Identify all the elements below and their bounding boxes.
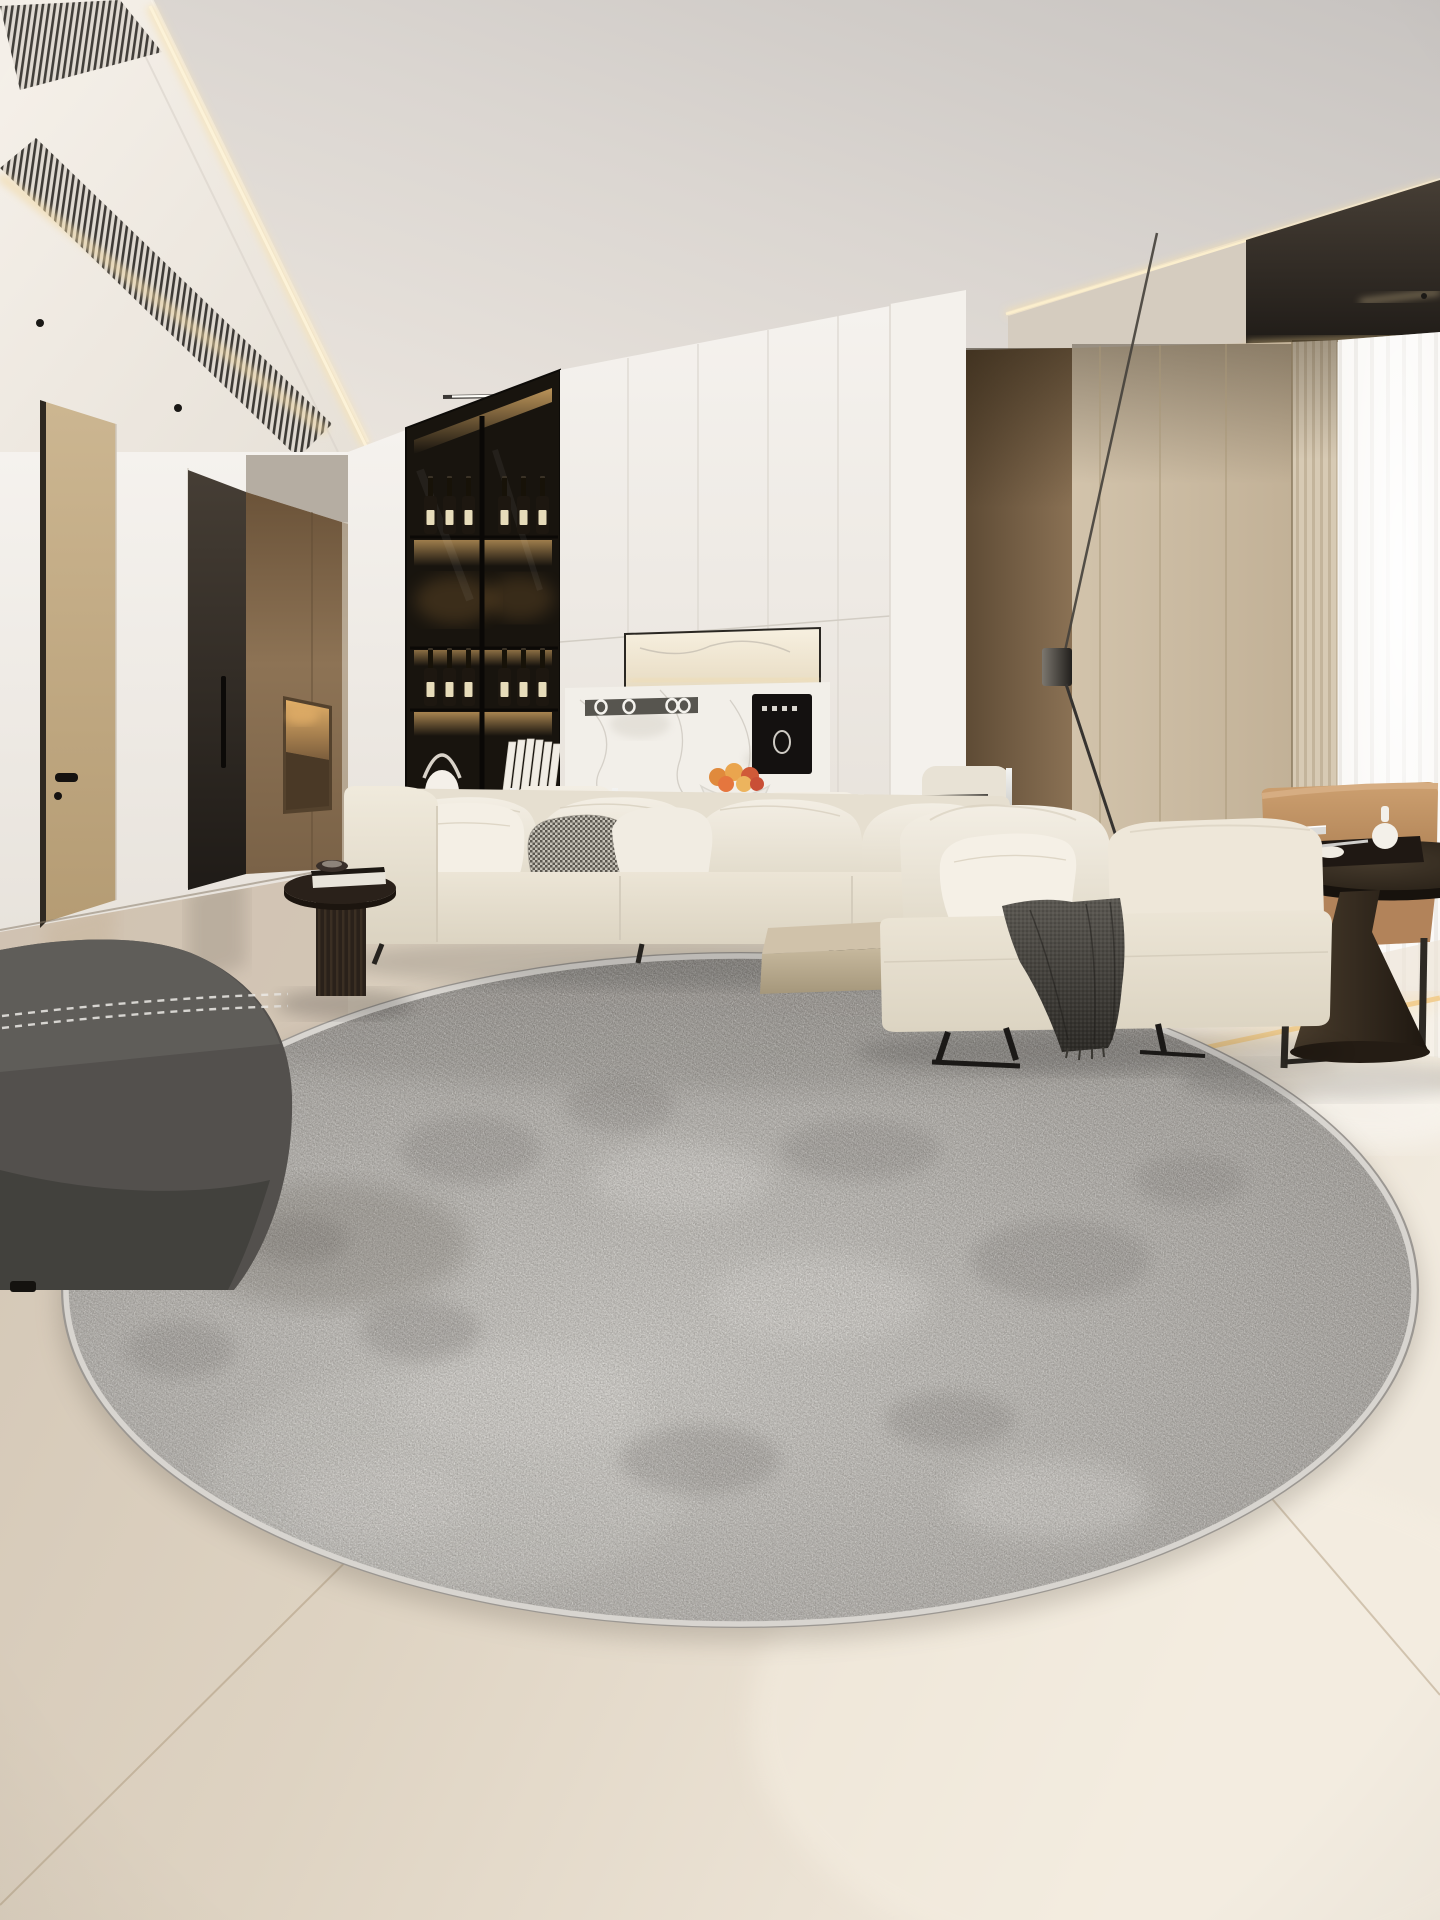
wall-left bbox=[0, 400, 348, 932]
marble-niche bbox=[625, 628, 820, 690]
utensil-rail bbox=[585, 697, 698, 716]
fruit bbox=[718, 776, 734, 792]
bowl-highlight bbox=[322, 861, 342, 868]
fruit bbox=[736, 776, 752, 792]
glow-arc bbox=[486, 576, 554, 620]
water-dispenser bbox=[752, 694, 812, 774]
niche-glow bbox=[286, 707, 318, 725]
spotlight bbox=[174, 404, 182, 412]
spotlight bbox=[36, 319, 44, 327]
spotlight bbox=[1421, 293, 1427, 299]
ottoman-foot bbox=[10, 1281, 36, 1292]
tan-panel-wall bbox=[246, 492, 348, 874]
wood-entry-door bbox=[46, 402, 116, 922]
flute-top-shadow bbox=[1292, 340, 1338, 460]
door-trim bbox=[40, 400, 46, 928]
dark-door-handle bbox=[221, 676, 226, 768]
panel-top-shadow bbox=[1072, 344, 1292, 484]
niche-shade bbox=[286, 752, 329, 810]
wall-top-shadow bbox=[966, 348, 1072, 508]
living-room-scene bbox=[0, 0, 1440, 1920]
living-room-photo bbox=[0, 0, 1440, 1920]
fruit bbox=[750, 777, 764, 791]
wine-display-cabinet bbox=[406, 370, 561, 858]
lamp-head bbox=[1042, 648, 1072, 686]
fluted-pedestal bbox=[316, 900, 366, 996]
dark-interior-door bbox=[188, 470, 246, 890]
lit-wall-niche bbox=[283, 696, 332, 814]
